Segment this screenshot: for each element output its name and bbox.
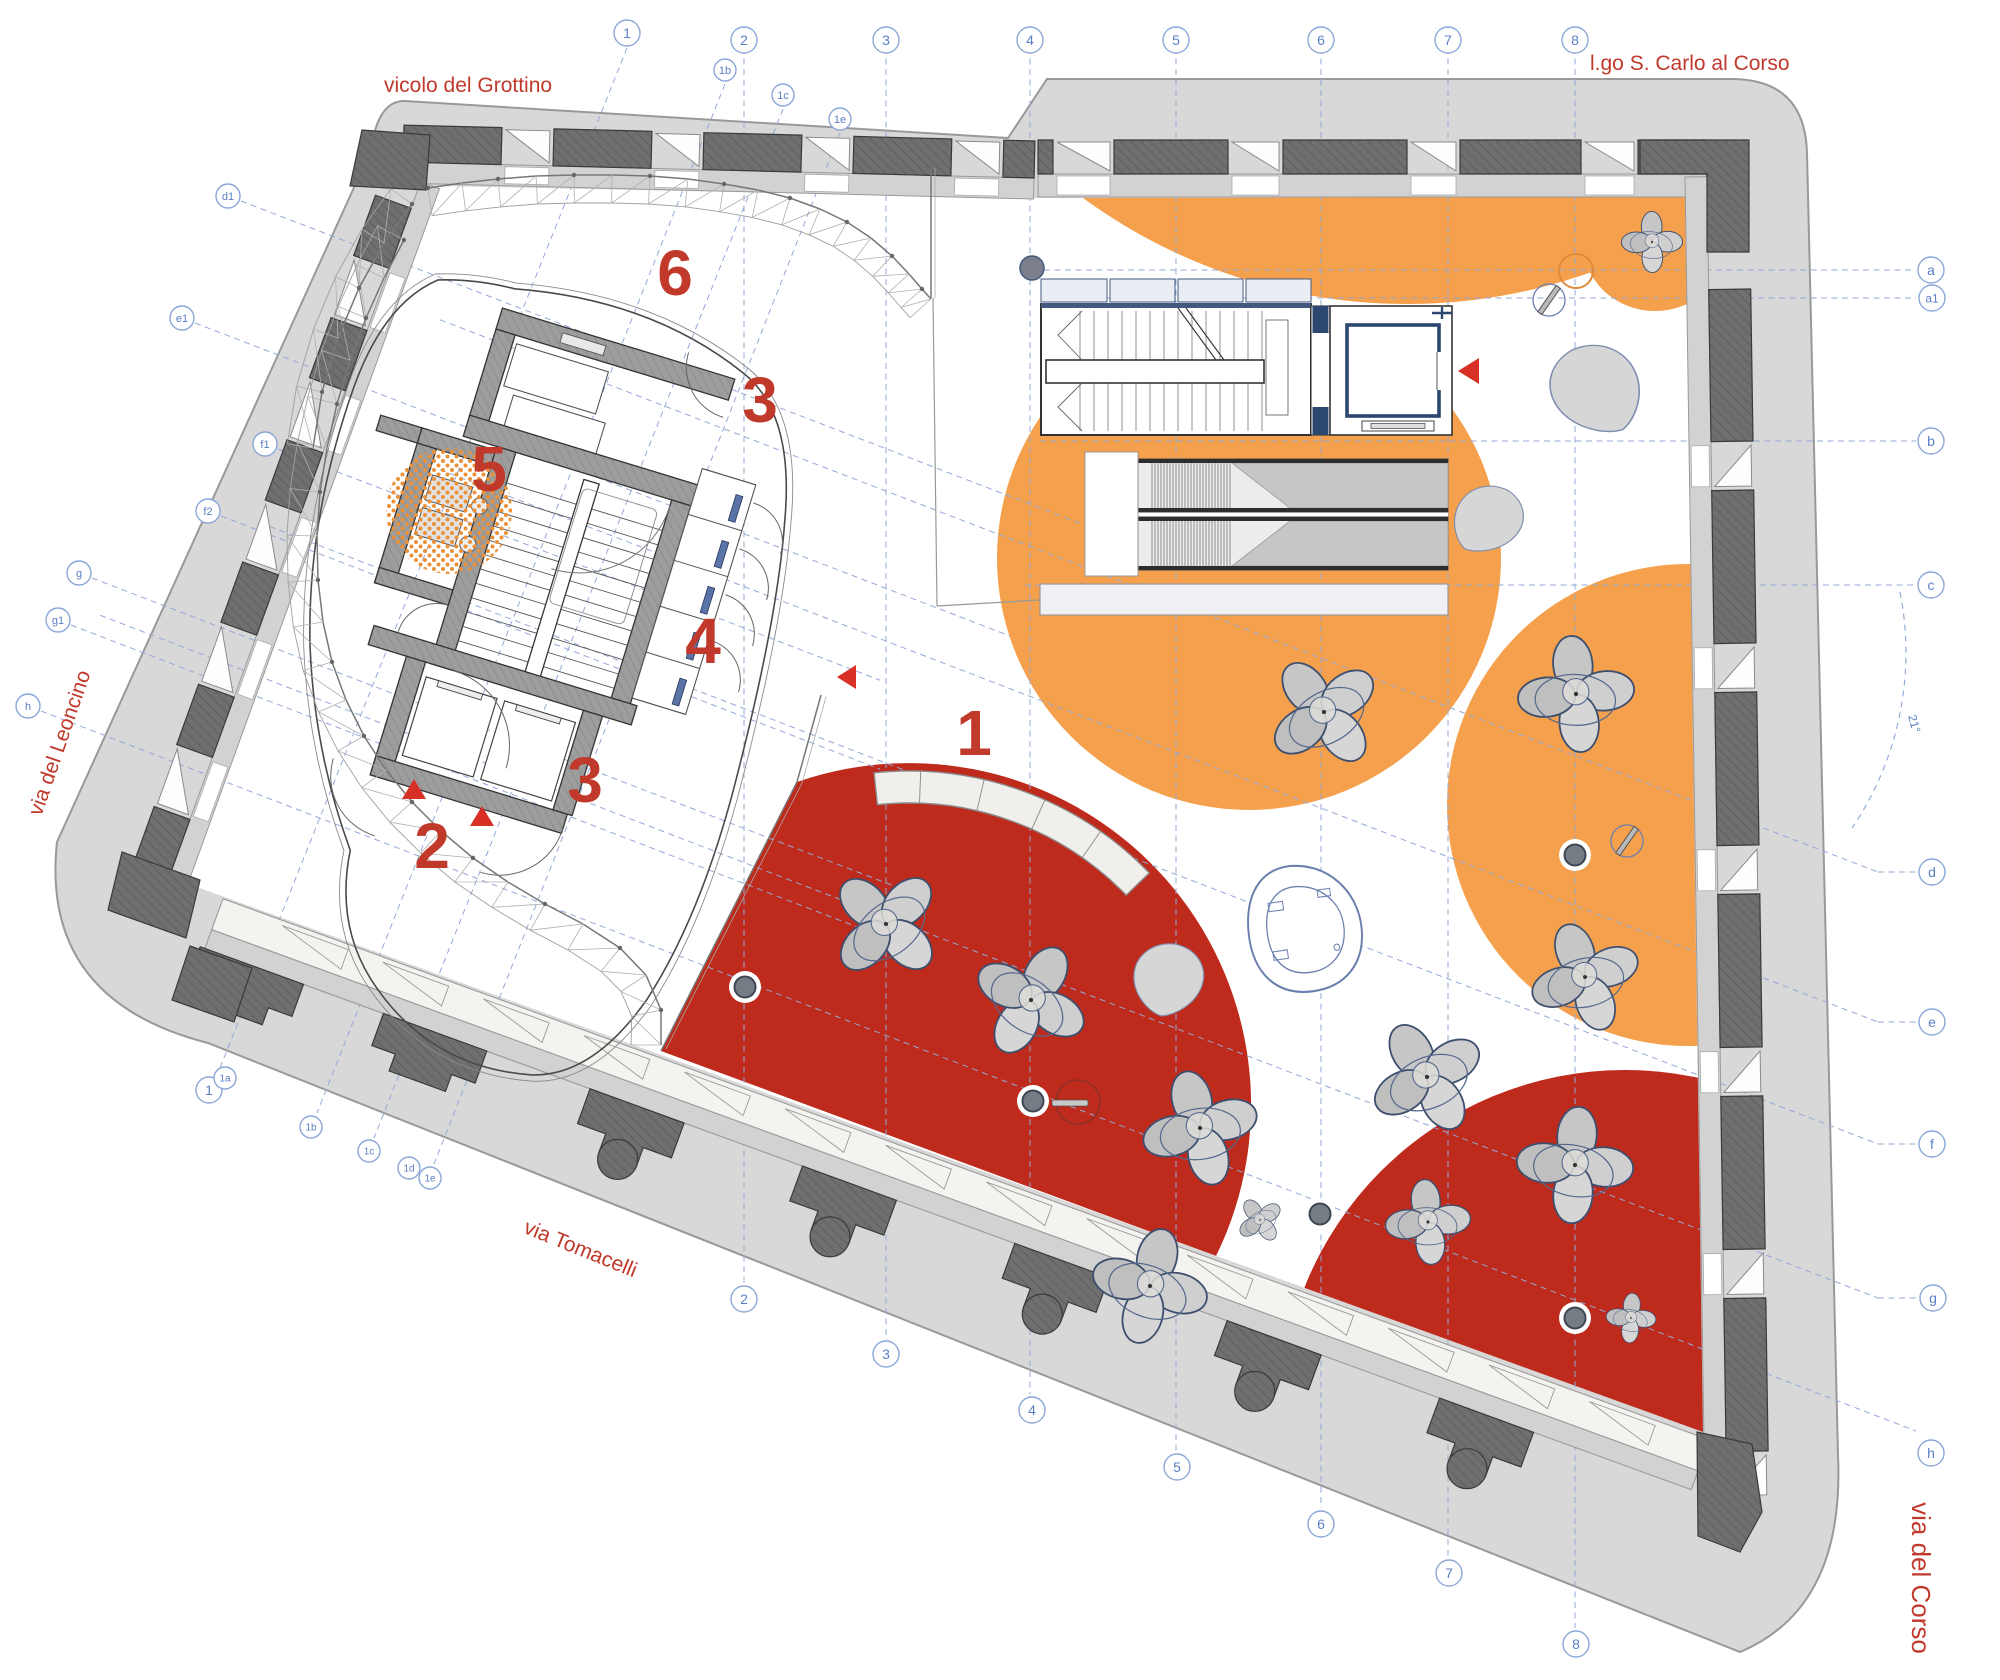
- svg-text:1: 1: [623, 25, 631, 41]
- svg-text:3: 3: [882, 32, 890, 48]
- svg-text:c: c: [1928, 577, 1935, 593]
- svg-text:b: b: [1927, 433, 1935, 449]
- svg-text:l.go S. Carlo al Corso: l.go S. Carlo al Corso: [1590, 52, 1790, 75]
- svg-text:1b: 1b: [305, 1123, 317, 1134]
- svg-text:4: 4: [1028, 1402, 1036, 1418]
- svg-text:1c: 1c: [777, 90, 789, 102]
- svg-text:1b: 1b: [719, 65, 731, 77]
- svg-text:8: 8: [1572, 1636, 1580, 1652]
- svg-text:1e: 1e: [834, 114, 846, 126]
- svg-text:8: 8: [1571, 32, 1579, 48]
- svg-text:g: g: [1929, 1290, 1937, 1306]
- svg-text:2: 2: [414, 810, 450, 882]
- svg-text:4: 4: [1026, 32, 1034, 48]
- svg-text:7: 7: [1445, 1565, 1453, 1581]
- svg-text:2: 2: [740, 1291, 748, 1307]
- svg-text:vicolo del Grottino: vicolo del Grottino: [384, 74, 552, 97]
- svg-text:1a: 1a: [219, 1074, 231, 1085]
- svg-text:5: 5: [1172, 32, 1180, 48]
- svg-text:a1: a1: [1925, 291, 1939, 305]
- svg-text:3: 3: [882, 1346, 890, 1362]
- svg-text:4: 4: [685, 605, 721, 677]
- svg-text:7: 7: [1444, 32, 1452, 48]
- svg-text:e: e: [1928, 1014, 1936, 1030]
- svg-text:6: 6: [1317, 32, 1325, 48]
- svg-text:e1: e1: [176, 313, 188, 325]
- svg-text:1c: 1c: [364, 1147, 375, 1158]
- svg-text:1e: 1e: [424, 1174, 436, 1185]
- svg-text:g: g: [76, 568, 82, 580]
- svg-text:f2: f2: [203, 506, 212, 518]
- svg-text:6: 6: [1317, 1516, 1325, 1532]
- svg-text:3: 3: [567, 744, 603, 816]
- svg-text:f1: f1: [260, 439, 269, 451]
- svg-text:2: 2: [740, 32, 748, 48]
- svg-text:1: 1: [205, 1082, 213, 1098]
- svg-text:6: 6: [657, 237, 693, 309]
- svg-text:h: h: [1927, 1445, 1935, 1461]
- svg-text:d: d: [1928, 864, 1936, 880]
- svg-text:a: a: [1927, 262, 1935, 278]
- svg-text:h: h: [25, 701, 31, 713]
- svg-text:3: 3: [742, 364, 778, 436]
- svg-text:1: 1: [956, 697, 992, 769]
- svg-text:g1: g1: [52, 615, 64, 627]
- svg-text:5: 5: [471, 433, 507, 505]
- svg-text:5: 5: [1173, 1459, 1181, 1475]
- svg-text:via del Corso: via del Corso: [1906, 1502, 1936, 1654]
- svg-text:d1: d1: [222, 191, 234, 203]
- svg-text:1d: 1d: [403, 1164, 414, 1175]
- svg-text:f: f: [1930, 1136, 1934, 1152]
